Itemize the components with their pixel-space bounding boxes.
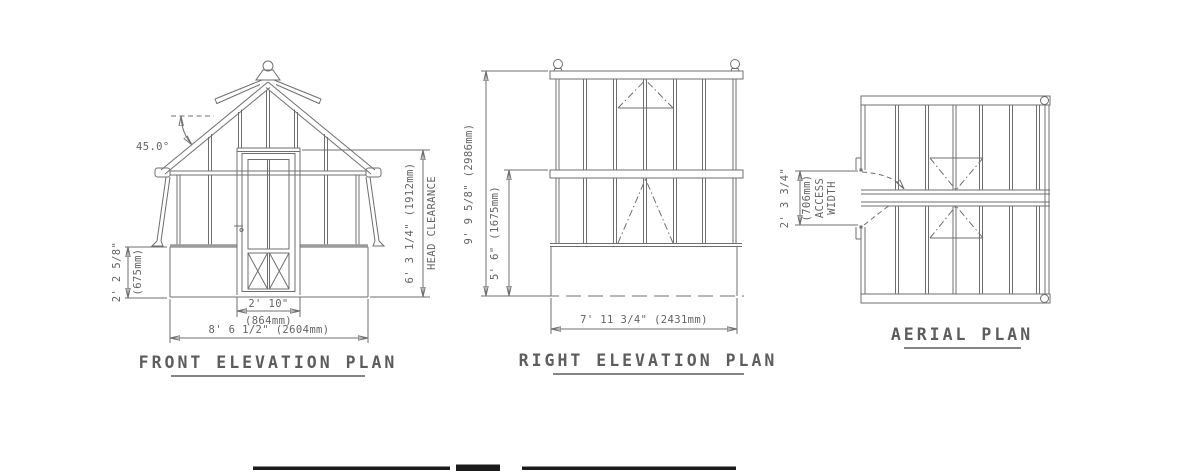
dim-roof-angle: 45.0°	[136, 116, 214, 153]
overall-width-front-label: 8' 6 1/2" (2604mm)	[209, 324, 330, 336]
side-vent-lower	[618, 179, 673, 243]
base-wall	[544, 244, 744, 297]
base-height-ft-label: 2' 2 5/8"	[111, 242, 123, 303]
right-width-label: 7' 11 3/4" (2431mm)	[580, 314, 708, 326]
dim-door-width: 2' 10" (864mm)	[237, 297, 300, 327]
drawing-canvas: 45.0° 2' 2 5/8" (675mm) 6' 3 1/4" (1912m…	[0, 0, 1180, 472]
dim-overall-height: 9' 9 5/8" (2986mm)	[463, 71, 548, 296]
right-elevation-view: 7' 11 3/4" (2431mm) 9' 9 5/8" (2986mm) 5…	[463, 60, 777, 375]
right-elevation-title: RIGHT ELEVATION PLAN	[519, 351, 778, 370]
dim-access-width: 2' 3 3/4" (706mm) ACCESS WIDTH	[779, 168, 858, 229]
access-label-1: ACCESS	[814, 178, 826, 218]
base-height-mm-label: (675mm)	[132, 248, 144, 295]
access-label-2: WIDTH	[826, 181, 838, 215]
ridge-cap	[215, 80, 321, 104]
plan-glazing	[896, 105, 1040, 294]
roof-angle-label: 45.0°	[136, 141, 170, 153]
access-width-ft-label: 2' 3 3/4"	[779, 168, 791, 229]
door-width-ft-label: 2' 10"	[248, 298, 288, 310]
roof-vent-upper	[618, 80, 673, 108]
drawing-page: 45.0° 2' 2 5/8" (675mm) 6' 3 1/4" (1912m…	[0, 0, 1180, 472]
access-width-mm-label: (706mm)	[801, 174, 813, 221]
dim-base-height: 2' 2 5/8" (675mm)	[111, 242, 167, 303]
gable-glazing	[209, 90, 328, 171]
finial-icon	[256, 61, 280, 80]
dim-head-clearance: 6' 3 1/4" (1912mm) HEAD CLEARANCE	[302, 150, 438, 297]
head-clearance-text-label: HEAD CLEARANCE	[426, 176, 438, 270]
dim-eaves-height: 5' 6" (1675mm)	[489, 170, 548, 296]
right-height-label: 9' 9 5/8" (2986mm)	[463, 124, 475, 245]
aerial-plan-title: AERIAL PLAN	[891, 325, 1033, 344]
door-swing	[860, 169, 905, 229]
front-elevation-view: 45.0° 2' 2 5/8" (675mm) 6' 3 1/4" (1912m…	[111, 61, 438, 376]
eaves-height-label: 5' 6" (1675mm)	[489, 186, 501, 280]
dim-overall-width-right: 7' 11 3/4" (2431mm)	[551, 298, 737, 334]
side-glazing	[556, 79, 736, 243]
aerial-plan-view: 2' 3 3/4" (706mm) ACCESS WIDTH AERIAL PL…	[779, 96, 1050, 348]
front-elevation-title: FRONT ELEVATION PLAN	[139, 353, 398, 372]
finial-icon	[554, 60, 740, 72]
ridge-bar	[550, 71, 743, 79]
gutter-band	[550, 170, 743, 178]
ridge-band	[861, 190, 1050, 206]
door	[234, 148, 300, 295]
bottom-bar	[253, 465, 736, 472]
head-clearance-dim-label: 6' 3 1/4" (1912mm)	[404, 163, 416, 284]
